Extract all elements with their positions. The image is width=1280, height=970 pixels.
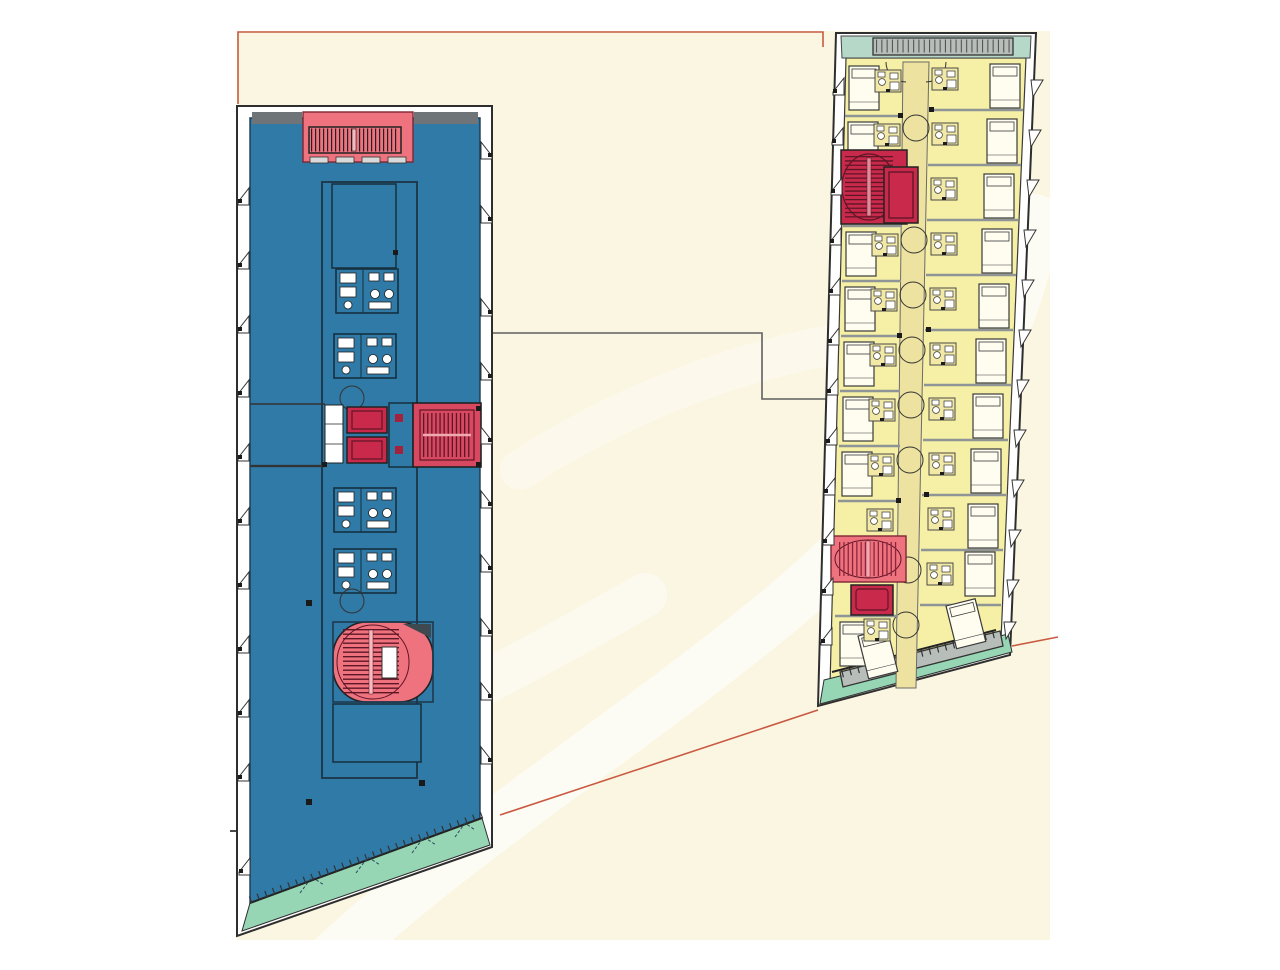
shaft-void [382, 647, 397, 678]
bathroom-pod [864, 619, 890, 641]
top-wall-poche-right [414, 112, 478, 124]
shaft-void [325, 405, 343, 463]
top-wall-poche-left [252, 112, 302, 124]
bed [990, 64, 1020, 108]
bathroom-pod [930, 343, 956, 365]
bathroom-pod [869, 399, 895, 421]
bed [968, 504, 998, 548]
office-oval-stair-core [333, 622, 433, 702]
bed [987, 119, 1017, 163]
bathroom-pod [927, 563, 953, 585]
hotel-tower-floor-plan [818, 33, 1043, 706]
bathroom-pod [929, 398, 955, 420]
bathroom-pod [875, 70, 901, 92]
lobby-door [395, 414, 403, 422]
bathroom-pod [868, 454, 894, 476]
drawing-canvas [0, 0, 1280, 970]
bed [982, 229, 1012, 273]
lobby-door [395, 446, 403, 454]
office-core-room-bottom [333, 704, 421, 762]
hotel-upper-stair-core [841, 150, 918, 224]
bathroom-pod [928, 508, 954, 530]
bathroom-pod [930, 288, 956, 310]
bathroom-pod [871, 289, 897, 311]
bed [976, 339, 1006, 383]
office-top-stair-core [303, 112, 413, 163]
bed [965, 552, 995, 596]
bathroom-pod [931, 233, 957, 255]
bathroom-pod [874, 124, 900, 146]
bed [979, 284, 1009, 328]
door-block [393, 250, 398, 255]
office-elevator-lobby [389, 403, 413, 467]
bathroom-pod [931, 178, 957, 200]
bathroom-pod [867, 509, 893, 531]
bathroom-pod [932, 68, 958, 90]
office-tower-floor-plan [237, 106, 492, 936]
bathroom-pod [929, 453, 955, 475]
bed [984, 174, 1014, 218]
bathroom-pod [932, 123, 958, 145]
office-mid-stair-core [413, 403, 481, 467]
canopy-hatch-band [873, 38, 1013, 55]
bed [973, 394, 1003, 438]
bathroom-pod [870, 344, 896, 366]
bed [971, 449, 1001, 493]
bathroom-pod [872, 234, 898, 256]
office-core-room-top [332, 184, 396, 268]
floor-plan-drawing [0, 0, 1280, 970]
